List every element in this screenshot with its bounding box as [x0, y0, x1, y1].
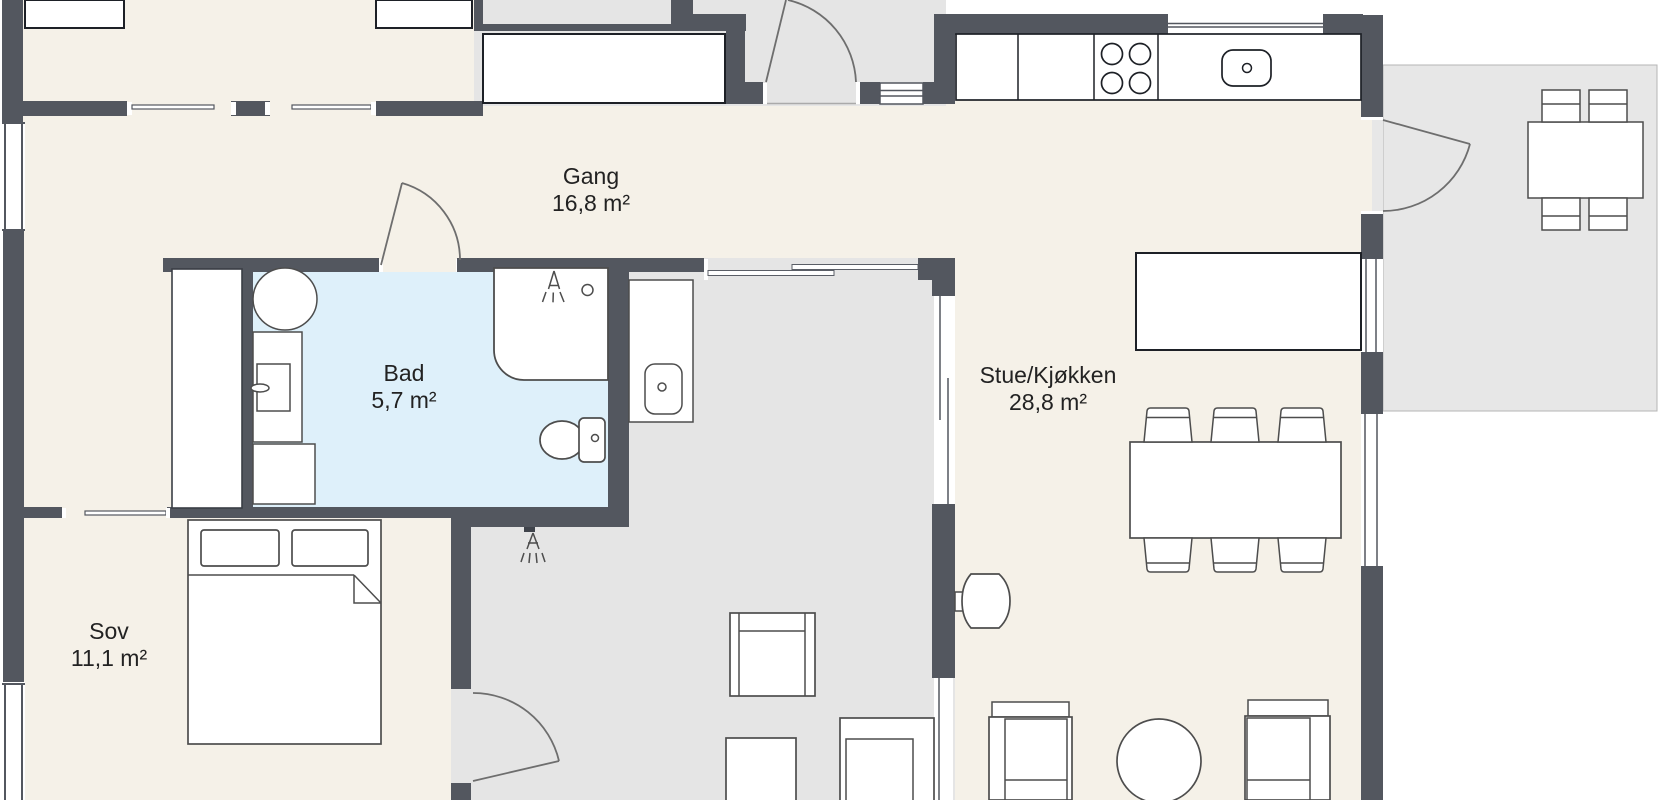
svg-text:5,7 m²: 5,7 m²	[371, 387, 437, 413]
svg-text:Gang: Gang	[563, 163, 619, 189]
svg-text:16,8 m²: 16,8 m²	[552, 190, 630, 216]
svg-text:Bad: Bad	[384, 360, 425, 386]
svg-text:11,1 m²: 11,1 m²	[71, 645, 148, 671]
svg-text:Stue/Kjøkken: Stue/Kjøkken	[980, 362, 1117, 388]
svg-text:Sov: Sov	[89, 618, 129, 644]
svg-text:28,8 m²: 28,8 m²	[1009, 389, 1087, 415]
